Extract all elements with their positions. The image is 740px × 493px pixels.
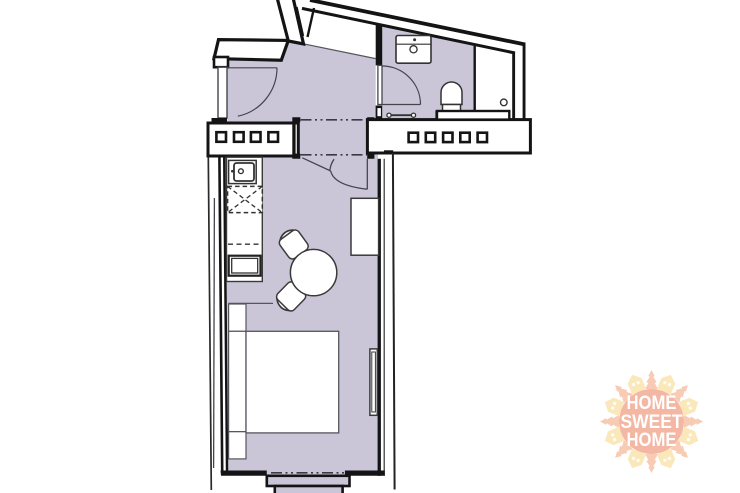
svg-text:HOME: HOME <box>627 429 677 451</box>
